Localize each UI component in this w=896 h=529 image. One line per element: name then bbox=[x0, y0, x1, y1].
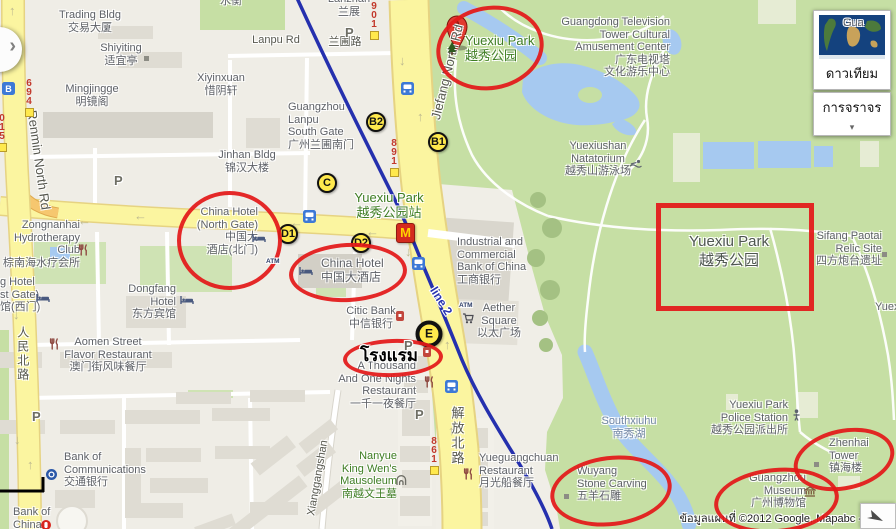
label-guangdong-tv-center-line-0: Guangdong Television bbox=[561, 16, 670, 29]
label-guangdong-tv-center: Guangdong TelevisionTower CulturalAmusem… bbox=[561, 16, 670, 79]
label-yuexiu-police-station-line-1: Police Station bbox=[711, 412, 788, 425]
label-gua-partial-line-0: Gua bbox=[843, 17, 864, 30]
label-yuexiu-police-station-line-0: Yuexiu Park bbox=[711, 399, 788, 412]
lane-arrow-down-icon: ↓ bbox=[405, 243, 412, 261]
label-thousand-nights-restaurant-line-3: 一千一夜餐厅 bbox=[338, 398, 416, 411]
label-icbc-line-1: Commercial bbox=[457, 249, 526, 262]
lane-arrow-left-icon: ← bbox=[366, 223, 379, 241]
poi-square-icon bbox=[144, 48, 149, 66]
label-mingjingge-line-0: Mingjingge bbox=[65, 83, 118, 96]
label-yueguangchuan-restaurant: YueguangchuanRestaurant月光船餐厅 bbox=[479, 452, 559, 490]
label-aether-square-line-0: Aether bbox=[477, 302, 521, 315]
road-badge-char: 4 bbox=[26, 97, 32, 106]
lane-arrow-up-icon: ↑ bbox=[9, 2, 16, 20]
label-lanpu-south-gate-line-2: South Gate bbox=[288, 126, 354, 139]
parking-icon: P bbox=[415, 406, 424, 424]
label-sifang-paotai-line-2: 四方炮台遗址 bbox=[816, 255, 882, 268]
road-badge-char: 5 bbox=[0, 132, 5, 141]
atm-icon: ATM bbox=[459, 294, 473, 312]
restaurant-icon bbox=[463, 467, 474, 485]
label-nanyue-mausoleum: NanyueKing Wen'sMausoleum南越文王墓 bbox=[340, 450, 397, 500]
label-lanpu-south-gate-line-1: Lanpu bbox=[288, 114, 354, 127]
label-bank-of-communications-line-1: Communications bbox=[64, 464, 146, 477]
label-xiyinxuan-line-1: 惜阴轩 bbox=[197, 85, 245, 98]
road-shield-icon bbox=[0, 143, 7, 152]
label-bank-of-communications-line-2: 交通银行 bbox=[64, 476, 146, 489]
label-aether-square-line-2: 以太广场 bbox=[477, 327, 521, 340]
label-shuiheng-line-0: 水衡 bbox=[220, 0, 242, 8]
label-citic-bank-line-1: 中信银行 bbox=[346, 318, 396, 331]
road-badge-char: 1 bbox=[431, 455, 437, 464]
mcdonalds-icon[interactable]: M bbox=[396, 223, 415, 243]
map-canvas[interactable]: A M ดาวเทียม การจราจร ▾ › ข้อมูลแผนที่ ©… bbox=[0, 0, 896, 529]
label-lanpu-rd: Lanpu Rd bbox=[252, 34, 300, 47]
label-dongfang-hotel: DongfangHotel东方宾馆 bbox=[128, 283, 176, 321]
label-dongfang-hotel-line-2: 东方宾馆 bbox=[128, 308, 176, 321]
label-yuexiu-police-station-line-2: 越秀公园派出所 bbox=[711, 424, 788, 437]
label-xiyinxuan: Xiyinxuan惜阴轩 bbox=[197, 72, 245, 97]
label-lanzhan-line-0: Lanzhan bbox=[328, 0, 370, 6]
label-xiyinxuan-line-0: Xiyinxuan bbox=[197, 72, 245, 85]
restaurant-icon bbox=[49, 337, 60, 355]
poi-square-icon bbox=[564, 486, 569, 504]
label-bank-of-communications: Bank ofCommunications交通银行 bbox=[64, 451, 146, 489]
satellite-button-label: ดาวเทียม bbox=[814, 59, 890, 89]
hotel-icon bbox=[36, 290, 50, 308]
lane-arrow-down-icon: ↓ bbox=[399, 52, 406, 70]
parking-icon: P bbox=[345, 24, 354, 42]
swimming-icon bbox=[629, 155, 642, 173]
red-poi-icon bbox=[423, 344, 431, 362]
red-poi-icon bbox=[396, 308, 404, 326]
label-sifang-paotai: Sifang PaotaiRelic Site四方炮台遗址 bbox=[816, 230, 882, 268]
label-yueguangchuan-restaurant-line-2: 月光船餐厅 bbox=[479, 477, 559, 490]
road-shield-icon bbox=[430, 466, 439, 475]
label-station-label-line-1: 越秀公园站 bbox=[354, 205, 423, 220]
lane-arrow-left-icon: ← bbox=[78, 212, 91, 230]
label-citic-bank-line-0: Citic Bank bbox=[346, 305, 396, 318]
lane-arrow-left-icon: ← bbox=[290, 214, 303, 232]
chevron-down-icon: ▾ bbox=[814, 123, 890, 135]
label-lanpu-south-gate-line-3: 广州兰圃南门 bbox=[288, 139, 354, 152]
atm-icon: ATM bbox=[266, 250, 280, 268]
label-zongnanhai-hydrotherapy-line-0: Zongnanhai bbox=[3, 219, 80, 232]
label-sifang-paotai-line-1: Relic Site bbox=[816, 243, 882, 256]
label-zongnanhai-hydrotherapy-line-2: Club bbox=[3, 244, 80, 257]
label-yueguangchuan-restaurant-line-0: Yueguangchuan bbox=[479, 452, 559, 465]
bank-of-communications-icon bbox=[46, 467, 57, 485]
parking-icon: P bbox=[114, 172, 123, 190]
label-shiyiting: Shiyiting适宜亭 bbox=[100, 42, 142, 67]
label-southxiuhu: Southxiuhu南秀湖 bbox=[601, 415, 656, 440]
marker-badge-c: C bbox=[317, 173, 337, 193]
label-trading-bldg: Trading Bldg交易大厦 bbox=[59, 9, 121, 34]
label-hotel-west-gate-partial-line-0: g Hotel bbox=[0, 276, 40, 289]
label-hotel-west-gate-partial-line-2: 馆(西门) bbox=[0, 301, 40, 314]
label-lanzhan: Lanzhan兰展 bbox=[328, 0, 370, 18]
bus-stop-icon bbox=[412, 257, 425, 275]
label-aomen-flavor-restaurant-line-0: Aomen Street bbox=[64, 336, 151, 349]
hotel-icon bbox=[252, 230, 266, 248]
road-badge-861: 861 bbox=[428, 437, 440, 475]
label-yuexiushan-natatorium: YuexiushanNatatorium越秀山游泳场 bbox=[565, 140, 631, 178]
label-aomen-flavor-restaurant-line-2: 澳门街风味餐厅 bbox=[64, 361, 151, 374]
lane-arrow-up-icon: ↑ bbox=[444, 336, 451, 354]
poi-square-icon bbox=[882, 244, 887, 262]
label-aomen-flavor-restaurant: Aomen StreetFlavor Restaurant澳门街风味餐厅 bbox=[64, 336, 151, 374]
label-southxiuhu-line-0: Southxiuhu bbox=[601, 415, 656, 428]
label-thousand-nights-restaurant-line-2: Restaurant bbox=[338, 385, 416, 398]
label-lanzhan-line-1: 兰展 bbox=[328, 6, 370, 19]
label-guangdong-tv-center-line-3: 广东电视塔 bbox=[561, 54, 670, 67]
label-station-label: Yuexiu Park越秀公园站 bbox=[354, 190, 423, 220]
navigate-arrow-icon bbox=[861, 504, 893, 526]
lane-arrow-left-icon: ← bbox=[134, 207, 147, 225]
road-badge-char: 1 bbox=[391, 157, 397, 166]
restaurant-icon bbox=[424, 375, 435, 393]
label-hotel-west-gate-partial-line-1: st Gate) bbox=[0, 289, 40, 302]
label-citic-bank: Citic Bank中信银行 bbox=[346, 305, 396, 330]
bus-stop-icon bbox=[445, 380, 458, 398]
lane-arrow-up-icon: ↑ bbox=[27, 456, 34, 474]
road-badge-694: 694 bbox=[23, 79, 35, 117]
label-southxiuhu-line-1: 南秀湖 bbox=[601, 428, 656, 441]
annotation-rect-yuexiu-park bbox=[656, 203, 814, 311]
label-renmin-north-rd-cn: 人民北路 bbox=[15, 326, 29, 382]
metro-station-icon: B bbox=[2, 82, 15, 100]
label-icbc-line-2: Bank of China bbox=[457, 261, 526, 274]
traffic-button-label: การจราจร bbox=[814, 93, 890, 123]
bus-stop-icon bbox=[303, 210, 316, 228]
road-badge-015: 015 bbox=[0, 114, 8, 152]
poi-square-icon bbox=[814, 454, 819, 472]
label-hotel-west-gate-partial: g Hotelst Gate)馆(西门) bbox=[0, 276, 40, 314]
lane-arrow-up-icon: ↑ bbox=[448, 422, 455, 440]
annotation-circle-china-hotel-north-gate bbox=[177, 191, 282, 290]
label-gua-partial: Gua bbox=[843, 17, 864, 30]
label-guangdong-tv-center-line-4: 文化游乐中心 bbox=[561, 66, 670, 79]
road-shield-icon bbox=[390, 168, 399, 177]
label-guangdong-tv-center-line-1: Tower Cultural bbox=[561, 29, 670, 42]
label-yuexiushan-natatorium-line-1: Natatorium bbox=[565, 153, 631, 166]
label-yuexiushan-natatorium-line-2: 越秀山游泳场 bbox=[565, 165, 631, 178]
mausoleum-icon bbox=[396, 472, 407, 490]
label-shiyiting-line-0: Shiyiting bbox=[100, 42, 142, 55]
label-trading-bldg-line-0: Trading Bldg bbox=[59, 9, 121, 22]
parking-icon: P bbox=[32, 408, 41, 426]
label-yueguangchuan-restaurant-line-1: Restaurant bbox=[479, 465, 559, 478]
label-station-label-line-0: Yuexiu Park bbox=[354, 190, 423, 205]
label-zongnanhai-hydrotherapy: ZongnanhaiHydrotherapyClub棕南海水疗会所 bbox=[3, 219, 80, 269]
traffic-button[interactable]: การจราจร ▾ bbox=[813, 92, 891, 136]
hotel-icon bbox=[299, 263, 313, 281]
road-badge-901: 901 bbox=[368, 2, 380, 40]
lane-arrow-down-icon: ↓ bbox=[14, 431, 21, 449]
label-icbc: Industrial andCommercialBank of China工商银… bbox=[457, 236, 526, 286]
lane-arrow-down-icon: ↓ bbox=[13, 306, 20, 324]
marker-badge-b2: B2 bbox=[366, 112, 386, 132]
label-guangdong-tv-center-line-2: Amusement Center bbox=[561, 41, 670, 54]
label-icbc-line-0: Industrial and bbox=[457, 236, 526, 249]
label-yuex-partial-line-0: Yuex bbox=[875, 301, 896, 314]
label-shiyiting-line-1: 适宜亭 bbox=[100, 55, 142, 68]
report-arrow-button[interactable] bbox=[860, 503, 896, 529]
label-yuexiushan-natatorium-line-0: Yuexiushan bbox=[565, 140, 631, 153]
label-icbc-line-3: 工商银行 bbox=[457, 274, 526, 287]
label-nanyue-mausoleum-line-2: Mausoleum bbox=[340, 475, 397, 488]
chevron-right-icon: › bbox=[9, 35, 16, 58]
hotel-icon bbox=[180, 292, 194, 310]
label-zongnanhai-hydrotherapy-line-1: Hydrotherapy bbox=[3, 232, 80, 245]
label-yuex-partial: Yuex bbox=[875, 301, 896, 314]
road-shield-icon bbox=[370, 31, 379, 40]
label-sifang-paotai-line-0: Sifang Paotai bbox=[816, 230, 882, 243]
label-aether-square: AetherSquare以太广场 bbox=[477, 302, 521, 340]
bus-stop-icon bbox=[401, 82, 414, 100]
label-nanyue-mausoleum-line-1: King Wen's bbox=[340, 463, 397, 476]
label-dongfang-hotel-line-1: Hotel bbox=[128, 296, 176, 309]
bank-of-china-icon bbox=[41, 517, 51, 529]
restaurant-icon bbox=[78, 243, 89, 261]
road-badge-char: 1 bbox=[371, 20, 377, 29]
label-jinhan-bldg-line-0: Jinhan Bldg bbox=[218, 149, 276, 162]
label-dongfang-hotel-line-0: Dongfang bbox=[128, 283, 176, 296]
road-shield-icon bbox=[25, 108, 34, 117]
label-mingjingge: Mingjingge明镜阁 bbox=[65, 83, 118, 108]
shopping-cart-icon bbox=[462, 311, 474, 329]
road-badge-891: 891 bbox=[388, 139, 400, 177]
tree-icon bbox=[447, 42, 457, 60]
label-bank-of-communications-line-0: Bank of bbox=[64, 451, 146, 464]
label-nanyue-mausoleum-line-3: 南越文王墓 bbox=[340, 488, 397, 501]
label-aether-square-line-1: Square bbox=[477, 315, 521, 328]
label-lanpu-south-gate-line-0: Guangzhou bbox=[288, 101, 354, 114]
label-lanpu-south-gate: GuangzhouLanpuSouth Gate广州兰圃南门 bbox=[288, 101, 354, 151]
police-icon bbox=[792, 408, 801, 426]
label-shuiheng: 水衡 bbox=[220, 0, 242, 8]
label-yuexiu-police-station: Yuexiu ParkPolice Station越秀公园派出所 bbox=[711, 399, 788, 437]
label-renmin-north-rd-cn-line-0: 人民北路 bbox=[15, 326, 29, 382]
label-jinhan-bldg: Jinhan Bldg锦汉大楼 bbox=[218, 149, 276, 174]
label-jinhan-bldg-line-1: 锦汉大楼 bbox=[218, 162, 276, 175]
label-lanpu-rd-line-0: Lanpu Rd bbox=[252, 34, 300, 47]
museum-icon bbox=[804, 484, 816, 502]
label-nanyue-mausoleum-line-0: Nanyue bbox=[340, 450, 397, 463]
label-aomen-flavor-restaurant-line-1: Flavor Restaurant bbox=[64, 349, 151, 362]
svg-text:B: B bbox=[5, 84, 12, 94]
lane-arrow-up-icon: ↑ bbox=[417, 108, 424, 126]
label-trading-bldg-line-1: 交易大厦 bbox=[59, 22, 121, 35]
label-zongnanhai-hydrotherapy-line-3: 棕南海水疗会所 bbox=[3, 257, 80, 270]
label-mingjingge-line-1: 明镜阁 bbox=[65, 96, 118, 109]
parking-icon: P bbox=[404, 337, 413, 355]
marker-badge-b1: B1 bbox=[428, 132, 448, 152]
